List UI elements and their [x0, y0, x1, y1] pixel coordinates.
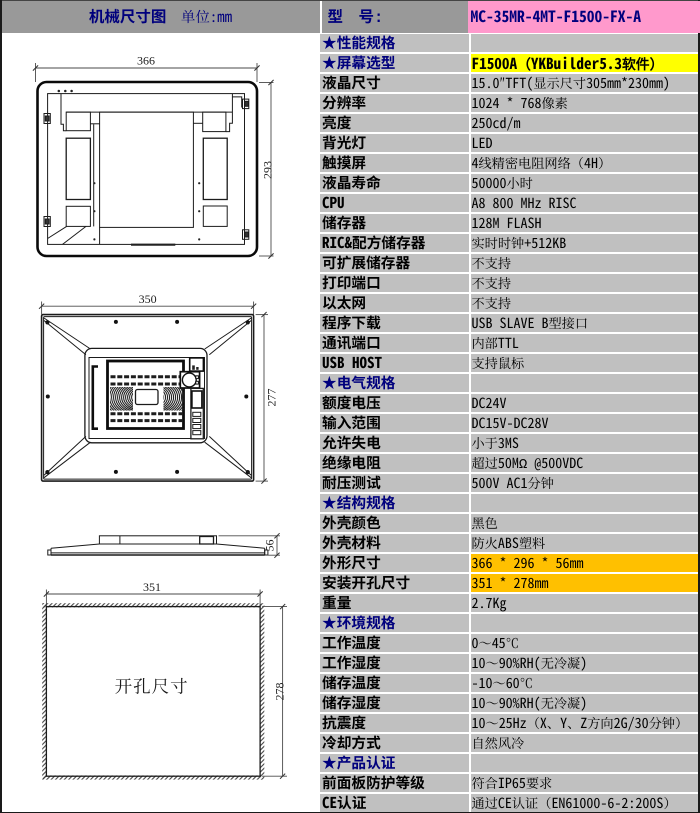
svg-text:56: 56	[263, 540, 277, 552]
svg-text:293: 293	[261, 161, 275, 179]
svg-text:开孔尺寸: 开孔尺寸	[115, 674, 189, 699]
svg-text:277: 277	[265, 389, 279, 407]
svg-text:351: 351	[143, 580, 161, 594]
svg-text:278: 278	[273, 683, 287, 701]
svg-text:366: 366	[137, 54, 155, 68]
svg-text:350: 350	[139, 292, 157, 306]
